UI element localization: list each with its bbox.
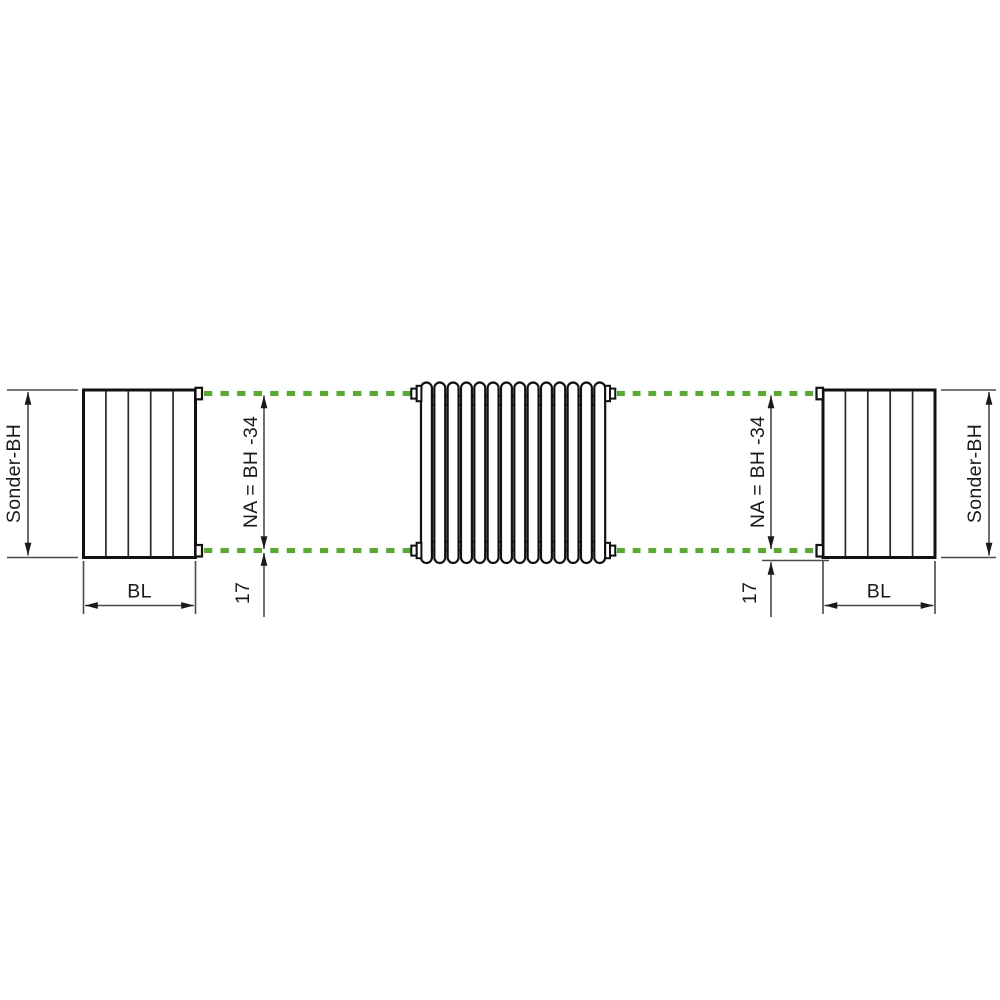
left-panel-tab-bottom	[196, 545, 203, 557]
offset-17-label-left: 17	[232, 582, 254, 604]
sonder-bh-dimension-right: Sonder-BH	[941, 390, 996, 558]
center-radiator	[411, 383, 615, 564]
bl-label-left: BL	[127, 581, 151, 603]
na-label-right: NA = BH -34	[747, 416, 769, 528]
radiator-tube	[488, 383, 499, 564]
radiator-tube	[461, 383, 472, 564]
bl-label-right: BL	[867, 581, 891, 603]
radiator-tube	[474, 383, 485, 564]
radiator-tube	[541, 383, 552, 564]
left-panel	[84, 388, 203, 558]
sonder-bh-dimension-left: Sonder-BH	[3, 390, 78, 558]
radiator-tube	[501, 383, 512, 564]
radiator-tube	[581, 383, 592, 564]
right-panel-tab-bottom	[817, 545, 824, 557]
offset-17-dimension-right: 17	[739, 561, 829, 618]
diagram-canvas: Sonder-BH BL NA = BH -34 17 Sonder-BH BL…	[0, 0, 1000, 1000]
right-panel-tab-top	[817, 388, 824, 400]
na-label-left: NA = BH -34	[240, 416, 262, 528]
nipple-top-left-cap	[411, 389, 416, 399]
bl-dimension-right: BL	[823, 561, 935, 614]
nipple-bottom-right-cap	[610, 546, 615, 556]
radiator-tube	[448, 383, 459, 564]
left-panel-outline	[84, 390, 196, 558]
sonder-bh-label-left: Sonder-BH	[3, 424, 25, 523]
radiator-tube	[514, 383, 525, 564]
radiator-tube	[554, 383, 565, 564]
nipple-bottom-left-cap	[411, 546, 416, 556]
sonder-bh-label-right: Sonder-BH	[964, 424, 986, 523]
right-panel-outline	[823, 390, 935, 558]
bl-dimension-left: BL	[84, 561, 196, 614]
radiator-tube	[421, 383, 432, 564]
radiator-tube	[568, 383, 579, 564]
na-dimension-right: NA = BH -34	[747, 396, 771, 550]
right-panel	[817, 388, 936, 558]
offset-17-dimension-left: 17	[232, 553, 264, 617]
na-dimension-left: NA = BH -34	[240, 396, 264, 550]
radiator-tube	[594, 383, 605, 564]
left-panel-tab-top	[196, 388, 203, 400]
radiator-dimension-diagram: Sonder-BH BL NA = BH -34 17 Sonder-BH BL…	[0, 0, 1000, 1000]
nipple-top-right-cap	[610, 389, 615, 399]
radiator-tube	[434, 383, 445, 564]
offset-17-label-right: 17	[739, 582, 761, 604]
radiator-tubes	[421, 383, 605, 564]
radiator-tube	[528, 383, 539, 564]
